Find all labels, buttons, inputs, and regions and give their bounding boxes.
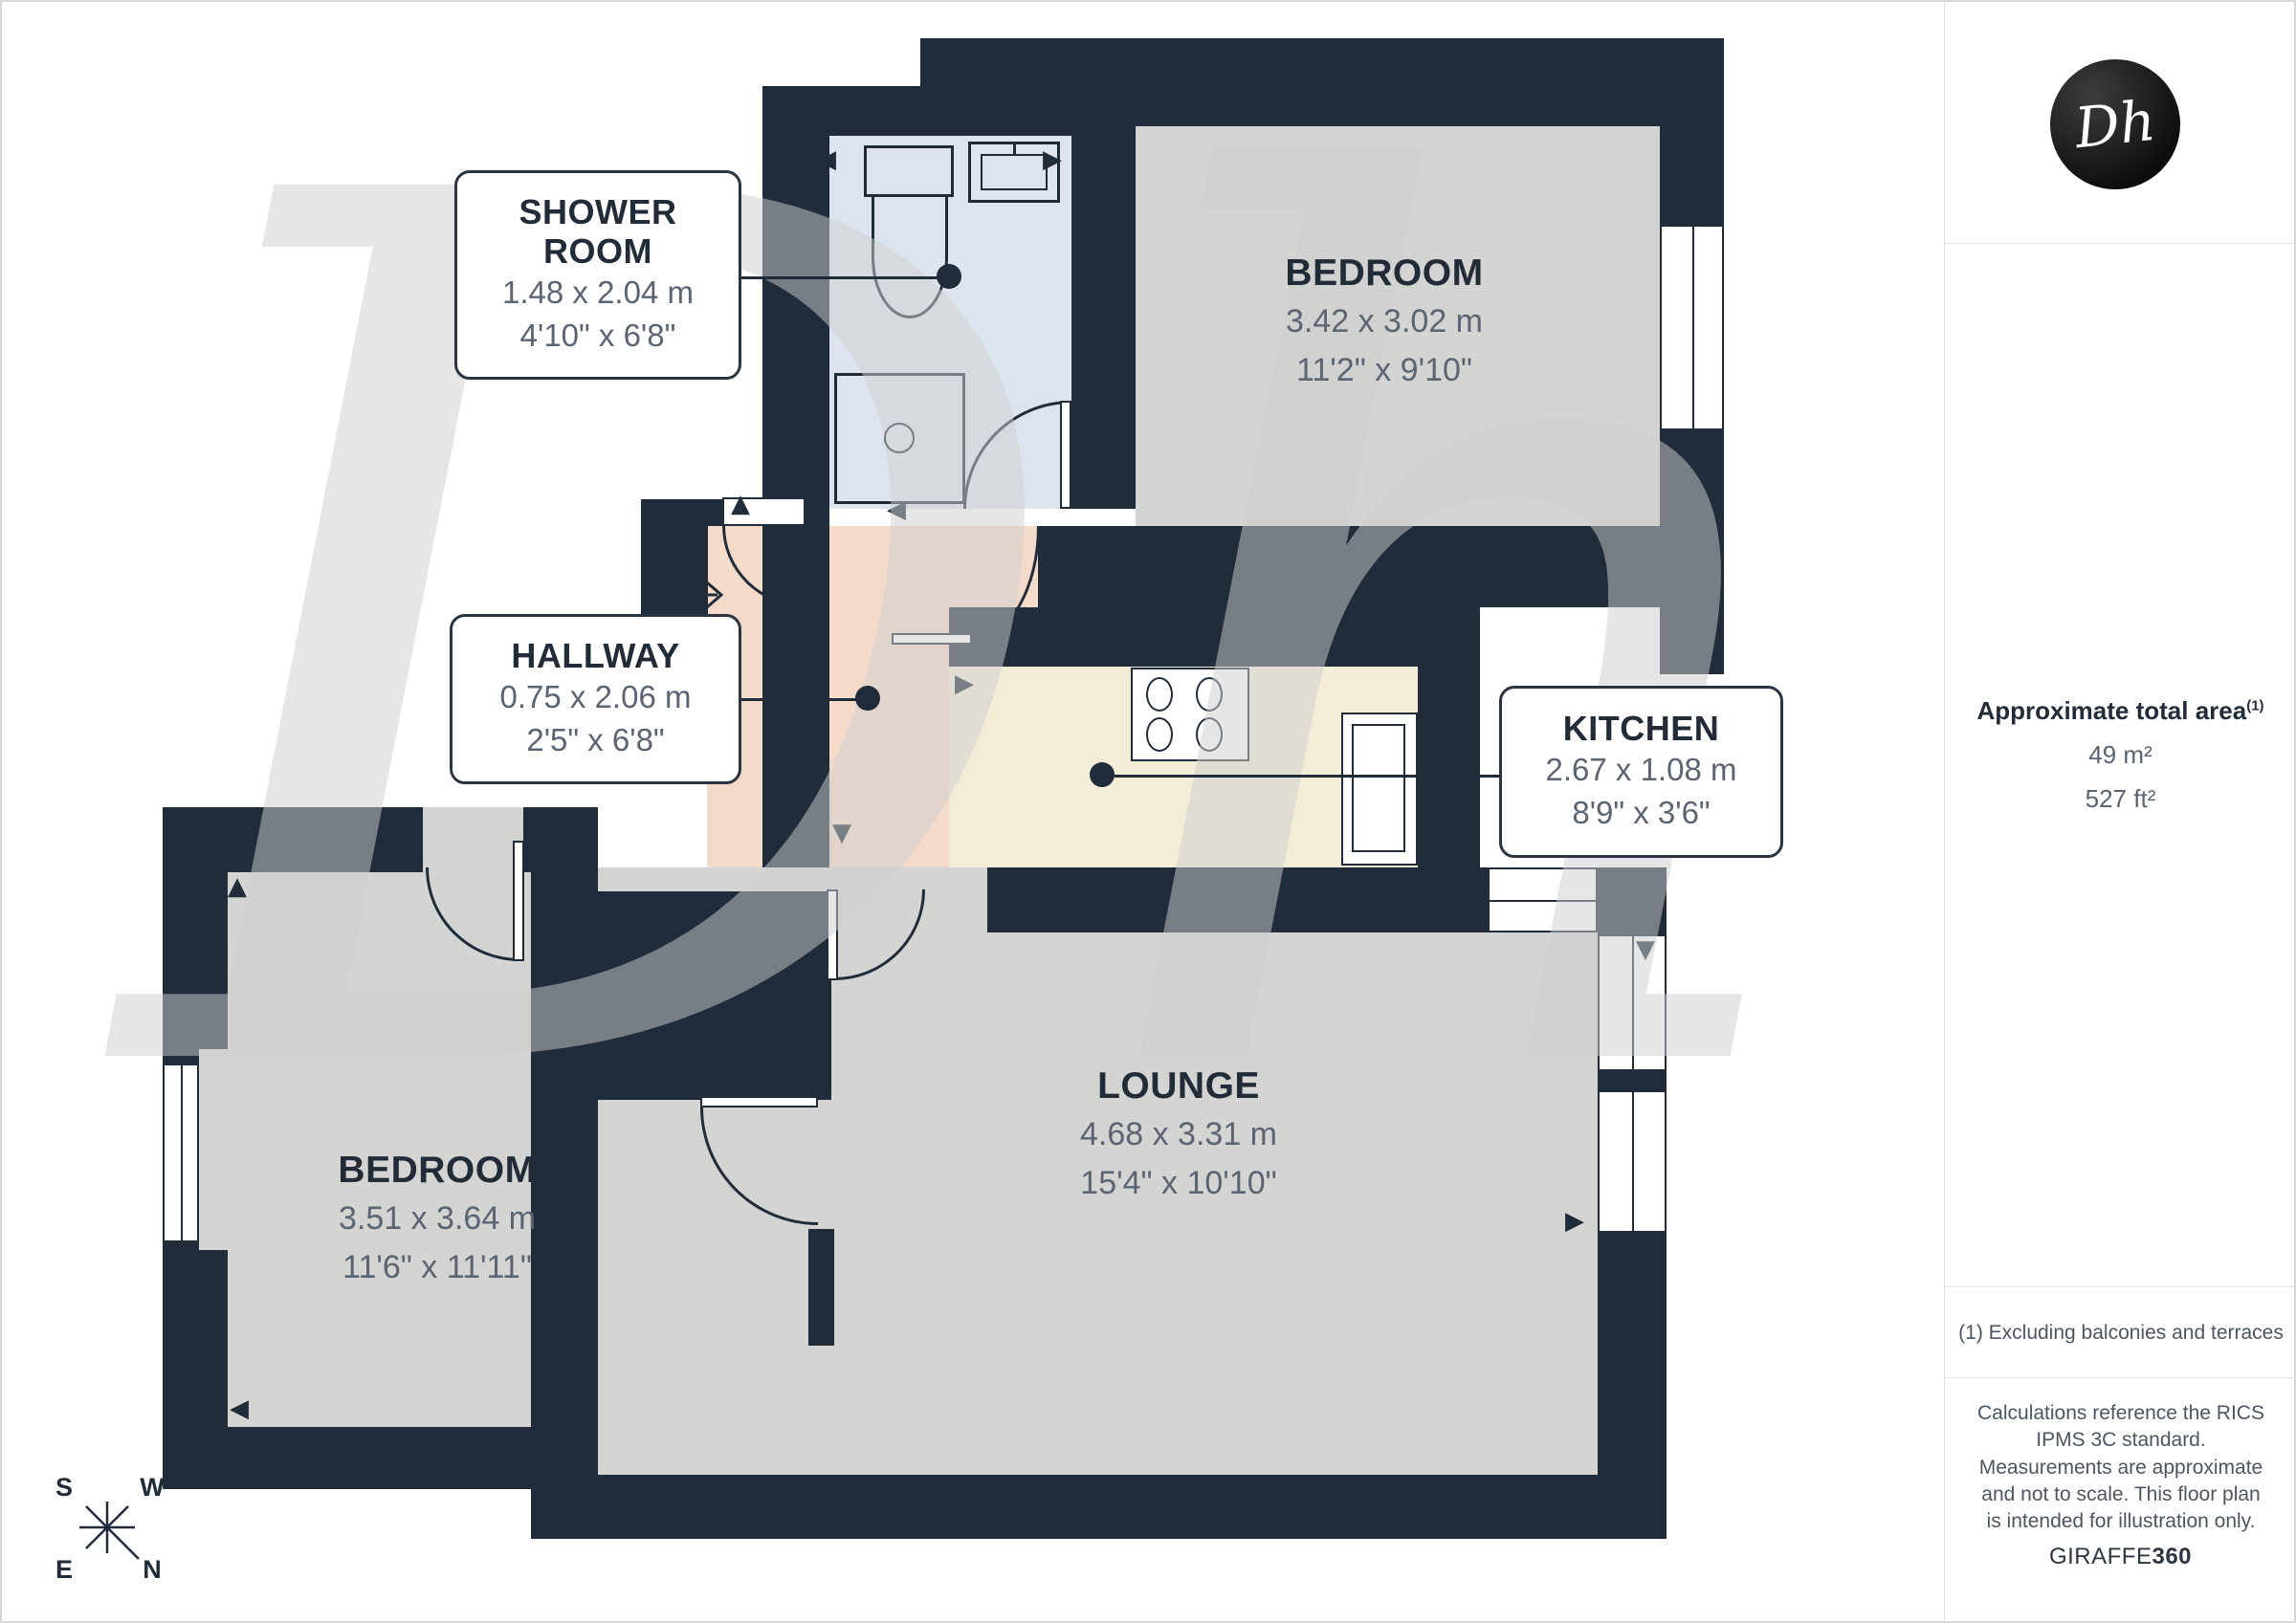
divider xyxy=(1945,1377,2296,1378)
bedroom-left-door-leaf xyxy=(513,841,524,961)
sink-tap xyxy=(1013,143,1016,156)
room-size-metric: 2.67 x 1.08 m xyxy=(1546,750,1737,791)
total-area-metric: 49 m² xyxy=(1945,740,2296,770)
measure-arrow-icon: ▼ xyxy=(1058,614,1077,639)
wall-lounge-top-right xyxy=(1598,867,1667,934)
wall-bedroom-left-right xyxy=(531,807,598,1477)
window-lounge-lower xyxy=(1598,1090,1667,1233)
burner xyxy=(1196,717,1223,752)
compass-s: S xyxy=(55,1473,73,1502)
window-bedroom-top xyxy=(1660,225,1724,430)
lounge-door-leaf xyxy=(700,1096,818,1108)
sink-basin xyxy=(981,154,1048,190)
agency-logo-text: Dh xyxy=(2072,88,2159,161)
burner xyxy=(1146,677,1173,712)
room-size-imperial: 2'5" x 6'8" xyxy=(526,720,664,761)
room-label-bedroom-left: BEDROOM 3.51 x 3.64 m 11'6" x 11'11" xyxy=(174,1150,700,1289)
divider xyxy=(1945,1286,2296,1287)
kitchen-sink xyxy=(1341,713,1418,866)
wall-lounge-right-3 xyxy=(1598,1233,1667,1475)
toilet-cistern xyxy=(864,145,954,197)
stove xyxy=(1131,668,1249,761)
divider xyxy=(1945,243,2296,244)
giraffe360-logo-right: 360 xyxy=(2152,1544,2192,1569)
giraffe360-logo: GIRAFFE360 xyxy=(1945,1544,2296,1570)
window-lounge-top xyxy=(1488,867,1598,932)
shower-tray xyxy=(834,373,965,504)
wall-block-lounge-left xyxy=(592,891,831,1100)
window-frame xyxy=(1632,936,1634,1069)
window-lounge-upper xyxy=(1598,934,1667,1071)
measure-arrow-icon: ▼ xyxy=(1636,937,1655,962)
room-size-metric: 3.51 x 3.64 m xyxy=(174,1197,700,1240)
room-label-shower: SHOWER ROOM 1.48 x 2.04 m 4'10" x 6'8" xyxy=(454,170,741,380)
compass-w: W xyxy=(140,1473,165,1502)
total-area-block: Approximate total area(1) 49 m² 527 ft² xyxy=(1945,696,2296,814)
room-size-imperial: 11'2" x 9'10" xyxy=(1121,349,1647,392)
toilet-bowl xyxy=(872,194,948,318)
measure-arrow-icon: ◀ xyxy=(230,1396,249,1421)
measure-arrow-icon: ▼ xyxy=(895,1505,915,1530)
room-label-hallway: HALLWAY 0.75 x 2.06 m 2'5" x 6'8" xyxy=(450,614,741,784)
compass-n: N xyxy=(143,1555,162,1584)
measure-arrow-icon: ▶ xyxy=(1043,147,1062,172)
room-name: BEDROOM xyxy=(1121,252,1647,295)
footnote-exclusions: (1) Excluding balconies and terraces xyxy=(1954,1320,2287,1347)
info-sidebar: Dh Approximate total area(1) 49 m² 527 f… xyxy=(1944,2,2296,1623)
measure-arrow-icon: ◀ xyxy=(817,147,836,172)
total-area-title: Approximate total area(1) xyxy=(1945,696,2296,726)
room-name: KITCHEN xyxy=(1563,710,1720,748)
wall-lounge-bottom xyxy=(531,1475,1667,1539)
room-name: BEDROOM xyxy=(174,1150,700,1192)
measure-arrow-icon: ▶ xyxy=(1565,1209,1584,1234)
room-size-metric: 0.75 x 2.06 m xyxy=(500,677,692,718)
wall-bedroom-right-upper xyxy=(1660,126,1724,227)
leader-dot-kitchen xyxy=(1090,762,1115,787)
room-label-lounge: LOUNGE 4.68 x 3.31 m 15'4" x 10'10" xyxy=(911,1065,1446,1205)
room-size-imperial: 8'9" x 3'6" xyxy=(1572,793,1710,834)
wall-lounge-spur xyxy=(808,1229,834,1346)
shower-door-leaf xyxy=(1060,401,1071,509)
bedroom-top-door-leaf xyxy=(892,633,972,645)
room-size-metric: 1.48 x 2.04 m xyxy=(502,273,694,314)
room-label-kitchen: KITCHEN 2.67 x 1.08 m 8'9" x 3'6" xyxy=(1499,686,1783,858)
room-size-metric: 4.68 x 3.31 m xyxy=(911,1113,1446,1156)
leader-line-shower xyxy=(740,276,949,279)
compass-rose: S W E N xyxy=(35,1456,179,1599)
measure-arrow-icon: ◀ xyxy=(887,497,906,522)
window-frame xyxy=(1632,1092,1634,1231)
measure-arrow-icon: ▼ xyxy=(832,821,851,845)
footnote-marker: (1) xyxy=(2246,697,2263,713)
leader-dot-shower xyxy=(937,264,961,289)
compass-e: E xyxy=(55,1555,73,1584)
kitchen-sink-basin xyxy=(1352,724,1405,852)
wall-under-bedroom xyxy=(1038,526,1724,607)
agency-logo: Dh xyxy=(2050,59,2180,189)
giraffe360-logo-left: GIRAFFE xyxy=(2049,1544,2152,1569)
leader-line-hallway xyxy=(740,698,868,701)
floorplan-page: ◀ ▶ ▲ ◀ ▼ ▶ ▼ ▶ ◀ ▲ ▼ ▼ Dh SHOWER ROOM 1… xyxy=(0,0,2296,1623)
window-frame xyxy=(1692,227,1694,428)
bedroom-left-door-gap xyxy=(423,807,523,874)
leader-line-kitchen xyxy=(1115,775,1499,778)
total-area-title-text: Approximate total area xyxy=(1976,696,2246,725)
disclaimer-text: Calculations reference the RICS IPMS 3C … xyxy=(1972,1400,2270,1536)
measure-arrow-icon: ▶ xyxy=(955,671,974,696)
shower-drain xyxy=(884,423,915,453)
room-size-imperial: 11'6" x 11'11" xyxy=(174,1246,700,1289)
room-size-metric: 3.42 x 3.02 m xyxy=(1121,300,1647,343)
room-name: LOUNGE xyxy=(911,1065,1446,1108)
wall-lounge-right-2 xyxy=(1598,1071,1667,1090)
room-name: SHOWER ROOM xyxy=(463,193,733,271)
measure-arrow-icon: ▲ xyxy=(731,492,750,516)
wall-kitchen-top xyxy=(949,607,1418,667)
room-label-bedroom-top: BEDROOM 3.42 x 3.02 m 11'2" x 9'10" xyxy=(1121,252,1647,392)
burner xyxy=(1146,717,1173,752)
wall-kitchen-bottom xyxy=(987,867,1480,932)
hall-lounge-door-leaf xyxy=(827,889,838,980)
wall-bedroom-top xyxy=(920,38,1724,126)
total-area-imperial: 527 ft² xyxy=(1945,784,2296,814)
window-frame xyxy=(1490,900,1596,902)
leader-dot-hallway xyxy=(855,686,880,711)
entry-arrow-icon xyxy=(660,571,735,619)
room-name: HALLWAY xyxy=(511,637,679,675)
room-size-imperial: 15'4" x 10'10" xyxy=(911,1162,1446,1205)
measure-arrow-icon: ▲ xyxy=(228,874,247,899)
room-size-imperial: 4'10" x 6'8" xyxy=(520,316,676,357)
burner xyxy=(1196,677,1223,712)
